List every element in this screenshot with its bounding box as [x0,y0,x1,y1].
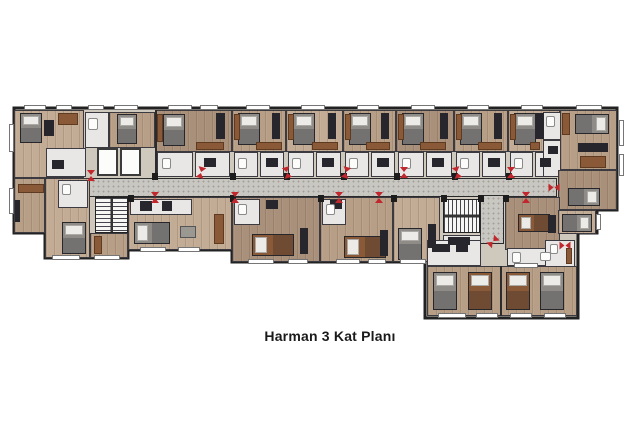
bed-blanket [541,291,563,309]
interior-wall [155,110,157,178]
window-icon [9,188,14,214]
bed-icon [402,113,424,145]
bath-fixture-icon [540,252,551,261]
door-swing-icon [399,167,409,178]
bed-icon [293,113,315,145]
bed-blanket [273,235,293,255]
window-icon [178,247,200,252]
bath-fixture-icon [546,116,555,127]
bed-icon [460,113,482,145]
window-icon [200,105,218,110]
bed-pillow [241,116,257,126]
door-swing-icon [86,170,96,181]
bed-blanket [507,291,529,309]
window-icon [596,214,601,230]
sofa-icon [214,214,224,244]
bed-icon [398,228,422,260]
plan-title: Harman 3 Kat Planı [0,328,640,344]
wardrobe-icon [322,158,334,167]
window-icon [510,313,532,318]
wardrobe-icon [15,200,20,222]
sofa-icon [94,236,102,254]
window-icon [301,105,325,110]
window-icon [248,259,274,264]
bed-pillow [347,239,359,255]
wardrobe-icon [328,113,336,139]
bed-icon [568,188,600,206]
window-icon [411,105,435,110]
window-icon [9,124,14,152]
window-icon [438,313,466,318]
window-icon [24,105,46,110]
bed-icon [468,272,492,310]
door-swing-icon [230,192,240,203]
sofa-icon [562,113,570,135]
bed-pillow [436,275,454,286]
bed-pillow [405,116,421,126]
bed-icon [238,113,260,145]
bed-icon [163,114,185,146]
bed-icon [62,222,86,254]
bed-icon [518,214,550,232]
window-icon [52,255,80,260]
sofa-icon [288,114,294,140]
bed-icon [506,272,530,310]
structural-column [152,173,158,180]
wardrobe-icon [548,146,558,154]
window-icon [476,313,498,318]
window-icon [521,105,543,110]
wardrobe-icon [377,158,389,167]
window-icon [619,120,624,146]
bed-pillow [517,116,533,126]
door-swing-icon [506,167,516,178]
structural-column [503,195,509,202]
bath-fixture-icon [238,204,247,215]
sofa-icon [530,142,540,150]
door-swing-icon [150,192,160,203]
wardrobe-icon [380,230,388,256]
sofa-icon [420,142,446,150]
bed-blanket [434,291,456,309]
bed-pillow [543,275,561,286]
wardrobe-icon [578,143,608,152]
door-swing-icon [560,241,571,251]
window-icon [544,313,566,318]
bed-pillow [471,275,489,286]
bed-blanket [164,130,184,145]
bed-blanket [534,215,549,231]
wardrobe-icon [494,113,502,139]
bath-fixture-icon [62,184,71,195]
wardrobe-icon [44,120,54,136]
door-swing-icon [334,192,344,203]
bed-icon [562,214,592,232]
sofa-icon [256,142,282,150]
wardrobe-icon [266,200,278,209]
window-icon [467,105,489,110]
bed-pillow [509,275,527,286]
wardrobe-icon [266,158,278,167]
wardrobe-icon [540,158,551,167]
wardrobe-icon [204,158,216,167]
bed-blanket [399,244,421,259]
bath-fixture-icon [88,118,98,130]
bed-icon [433,272,457,310]
window-icon [88,105,104,110]
bed-icon [117,114,137,144]
sofa-icon [398,114,404,140]
bath-fixture-icon [326,204,335,215]
interior-wall [500,266,502,316]
window-icon [288,259,308,264]
bed-blanket [21,128,41,142]
bed-pillow [587,191,597,203]
wardrobe-icon [162,201,172,211]
sofa-icon [366,142,390,150]
window-icon [514,263,538,268]
bed-pillow [296,116,312,126]
bed-pillow [521,217,531,229]
bed-blanket [152,223,169,243]
sofa-icon [345,114,351,140]
bath-fixture-icon [292,158,301,169]
sofa-icon [312,142,338,150]
window-icon [576,105,602,110]
bed-icon [514,113,536,145]
wardrobe-icon [536,113,544,139]
wardrobe-icon [216,113,225,139]
bath-fixture-icon [238,158,247,169]
window-icon [56,105,72,110]
structural-column [441,195,447,202]
bath-fixture-icon [512,252,521,263]
wardrobe-icon [432,158,444,167]
door-swing-icon [549,183,560,193]
sofa-icon [456,114,462,140]
floor-plan: Harman 3 Kat Planı [0,0,640,432]
door-swing-icon [374,192,384,203]
wardrobe-icon [440,113,448,139]
window-icon [168,105,192,110]
bed-blanket [294,129,314,144]
bed-pillow [255,237,267,253]
bed-pillow [137,225,148,241]
window-icon [336,259,360,264]
bed-pillow [166,117,182,127]
elevator-shaft [120,148,141,176]
bed-blanket [576,115,592,133]
window-icon [140,247,166,252]
structural-column [478,195,484,202]
structural-column [318,195,324,202]
sofa-icon [196,142,224,150]
table-icon [180,226,196,238]
structural-column [391,195,397,202]
bed-pillow [65,225,83,235]
bed-icon [575,114,609,134]
bath-fixture-icon [550,244,558,254]
bed-pillow [352,116,368,126]
bed-pillow [23,116,39,125]
window-icon [368,259,386,264]
bed-pillow [401,231,419,241]
bed-blanket [118,129,136,143]
wardrobe-icon [456,244,468,252]
bed-pillow [596,117,606,131]
sofa-icon [510,114,516,140]
bed-icon [134,222,170,244]
window-icon [400,259,426,264]
bed-icon [252,234,294,256]
bed-icon [540,272,564,310]
window-icon [357,105,379,110]
wardrobe-icon [381,113,389,139]
sofa-icon [580,156,606,168]
staircase [95,197,128,233]
wardrobe-icon [52,160,64,169]
bath-fixture-icon [460,158,469,169]
window-icon [114,105,138,110]
window-icon [619,154,624,176]
wardrobe-icon [548,215,556,233]
elevator-shaft [97,148,118,176]
window-icon [246,105,270,110]
structural-column [128,195,134,202]
bed-blanket [469,291,491,309]
window-icon [94,255,120,260]
door-swing-icon [521,192,531,203]
wardrobe-icon [272,113,280,139]
wardrobe-icon [488,158,500,167]
bed-blanket [563,215,577,231]
sofa-icon [58,113,78,125]
sofa-icon [478,142,502,150]
bath-fixture-icon [162,158,171,169]
bed-pillow [580,217,589,229]
bed-pillow [120,117,134,126]
bed-blanket [63,238,85,253]
sofa-icon [18,184,44,193]
sofa-icon [234,114,240,140]
bed-pillow [463,116,479,126]
wardrobe-icon [300,228,308,254]
sofa-icon [157,114,163,142]
bed-icon [349,113,371,145]
bed-icon [20,113,42,143]
bed-blanket [569,189,584,205]
wardrobe-icon [432,244,450,252]
staircase [443,199,480,233]
structural-column [230,173,236,180]
